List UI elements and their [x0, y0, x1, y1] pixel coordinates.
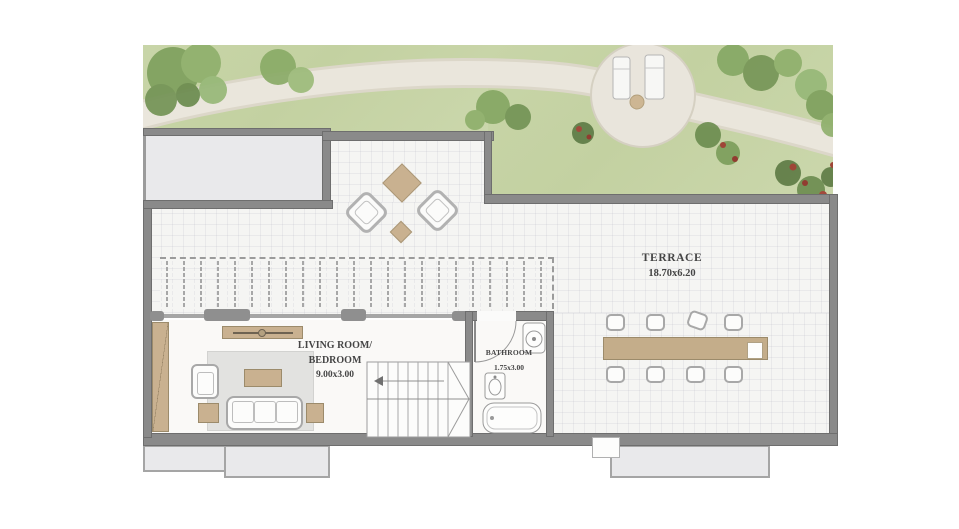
neighbour-block-bottom-right	[610, 445, 770, 478]
dining-chair	[686, 366, 705, 383]
terrace-dims: 18.70x6.20	[597, 268, 747, 279]
wall-upper-terrace-right	[484, 131, 492, 201]
chair-seat	[353, 199, 380, 226]
sofa-cushion	[232, 401, 254, 423]
terrace-name: TERRACE	[597, 252, 747, 264]
living-room-dims: 9.00x3.00	[280, 368, 390, 383]
sun-lounger	[645, 55, 664, 99]
sofa	[226, 396, 303, 430]
bathroom-name: BATHROOM	[473, 345, 545, 360]
sliding-panel	[204, 309, 250, 321]
neighbour-block-top-left	[143, 131, 327, 203]
pergola-louvers	[160, 257, 554, 309]
tv-knob	[258, 329, 266, 337]
floor-plan: TERRACE 18.70x6.20 LIVING ROOM/ BEDROOM …	[0, 0, 959, 529]
sliding-panel	[341, 309, 366, 321]
wardrobe	[152, 322, 169, 432]
dining-chair	[606, 366, 625, 383]
bathroom-fixtures	[465, 313, 553, 437]
wall-below-block	[143, 200, 333, 209]
side-table	[198, 403, 219, 423]
armchair-cushion	[197, 372, 214, 395]
table-tray	[747, 342, 763, 359]
sofa-cushion	[276, 401, 298, 423]
bathroom-label: BATHROOM 1.75x3.00	[473, 345, 545, 375]
dining-chair	[606, 314, 625, 331]
wall-top-left	[143, 128, 331, 136]
patio-table	[630, 95, 644, 109]
terrace-label: TERRACE 18.70x6.20	[597, 252, 747, 279]
sun-lounger	[613, 57, 630, 99]
chair-seat	[424, 197, 451, 224]
dining-chair	[724, 314, 743, 331]
wall-right	[829, 194, 838, 440]
living-room-name-line2: BEDROOM	[280, 353, 390, 368]
coffee-table	[244, 369, 282, 387]
living-room-name-line1: LIVING ROOM/	[280, 338, 390, 353]
living-room-label: LIVING ROOM/ BEDROOM 9.00x3.00	[280, 338, 390, 383]
glass-wall-pier	[150, 311, 164, 321]
dining-chair	[646, 314, 665, 331]
round-patio	[591, 45, 695, 147]
sink	[485, 373, 505, 399]
dining-chair	[646, 366, 665, 383]
dining-chair	[724, 366, 743, 383]
armchair	[191, 364, 219, 399]
exterior-step	[592, 437, 620, 458]
sofa-cushion	[254, 401, 276, 423]
dining-table	[603, 337, 768, 360]
wall-upper-terrace-left	[322, 131, 331, 206]
wall-upper-terrace-top	[322, 131, 494, 141]
wall-terrace-top	[484, 194, 838, 204]
side-table	[306, 403, 324, 423]
bathtub	[483, 403, 541, 433]
neighbour-block-bottom-left-step	[224, 445, 330, 478]
glass-wall-line	[152, 314, 468, 318]
bathroom-dims: 1.75x3.00	[473, 360, 545, 375]
